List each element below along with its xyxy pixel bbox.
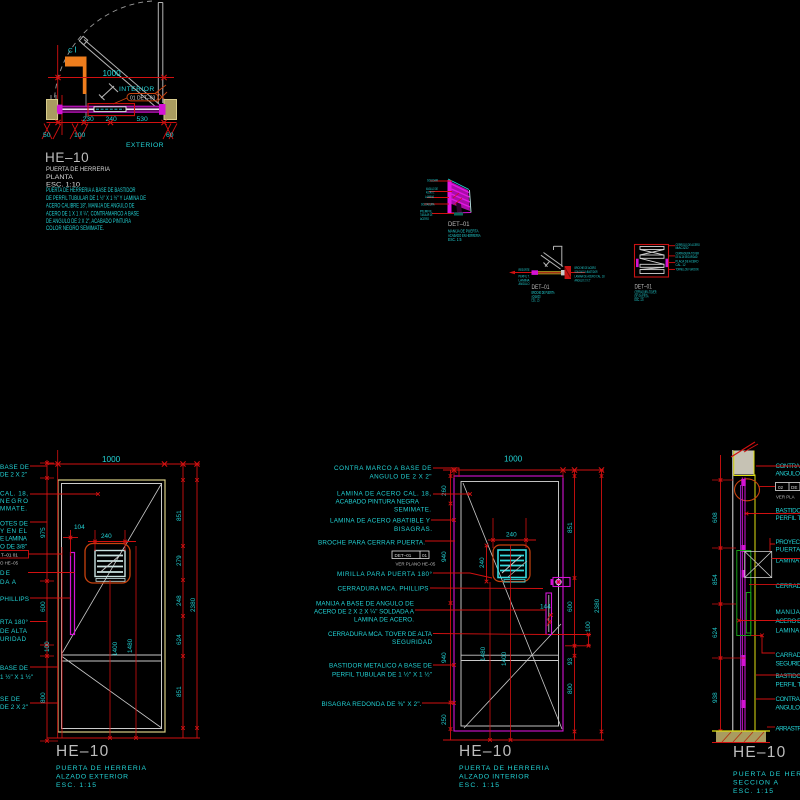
svg-text:DE 2 X 2": DE 2 X 2" [0,472,27,479]
svg-text:SEMIMATE.: SEMIMATE. [394,507,431,514]
svg-text:RESORTE: RESORTE [519,268,531,272]
svg-text:LAMINA: LAMINA [425,195,435,199]
svg-text:HE–10: HE–10 [45,150,89,165]
svg-text:1000: 1000 [504,455,523,464]
svg-text:DET–01: DET–01 [448,222,470,228]
svg-text:RTA 180°: RTA 180° [0,618,28,626]
svg-text:C: C [68,48,73,55]
svg-text:100: 100 [585,621,592,632]
svg-text:BASTIDOR: BASTIDOR [776,673,800,680]
svg-text:URIDAD: URIDAD [0,636,26,643]
svg-text:600: 600 [567,601,574,612]
svg-text:ESC. 1:5: ESC. 1:5 [448,237,462,242]
svg-text:PERFIL TUBULAR DE 1 ½" X 1 ½": PERFIL TUBULAR DE 1 ½" X 1 ½" [332,671,432,679]
svg-text:SE DE: SE DE [0,696,20,703]
svg-text:240: 240 [479,557,486,568]
svg-text:PUERTA DE HERRERIA A BASE DE B: PUERTA DE HERRERIA A BASE DE BASTIDOR [46,187,136,194]
svg-text:ESC. 1:5: ESC. 1:5 [635,297,644,302]
svg-text:800: 800 [40,692,47,703]
svg-text:PUERTA DE HERRERIA: PUERTA DE HERRERIA [46,166,111,173]
svg-text:ACERO 1": ACERO 1" [426,191,435,195]
svg-text:LAMINA DE ACERO ABATIBLE Y: LAMINA DE ACERO ABATIBLE Y [330,518,431,525]
svg-text:ESC. 1:15: ESC. 1:15 [733,788,773,795]
svg-text:DE: DE [791,485,797,490]
svg-text:PERFIL TU: PERFIL TU [776,515,800,522]
svg-text:MANIJA A BASE DE ANGULO DE: MANIJA A BASE DE ANGULO DE [316,601,414,608]
svg-text:144: 144 [540,604,551,611]
svg-text:SOLDADURA: SOLDADURA [421,202,435,206]
svg-text:VER PLANO HE–05: VER PLANO HE–05 [396,562,436,567]
svg-text:PLANTA: PLANTA [46,174,74,181]
svg-text:CAL. 18,: CAL. 18, [0,491,28,498]
svg-text:50: 50 [43,132,51,139]
svg-text:PUERTA DE HERRERIA: PUERTA DE HERRERIA [56,765,146,772]
svg-text:ACERO DE 1 X 1 X ¼", CONTRAMA: ACERO DE 1 X 1 X ¼", CONTRAMARCO A BASE [46,211,139,218]
svg-text:1400: 1400 [501,651,508,666]
svg-text:2380: 2380 [594,598,601,613]
svg-text:PUERTA DE HERRERIA: PUERTA DE HERRERIA [459,765,549,772]
svg-text:248: 248 [176,595,183,606]
svg-text:DE ANGULO DE 2 X 2", ACABADO P: DE ANGULO DE 2 X 2", ACABADO PINTURA [46,218,132,225]
svg-text:60: 60 [166,132,174,139]
svg-text:DE ALTA: DE ALTA [0,628,28,635]
svg-text:DE ALTA SEGURIDAD: DE ALTA SEGURIDAD [676,255,698,259]
svg-text:279: 279 [176,555,183,566]
svg-text:MMATE.: MMATE. [0,506,27,513]
svg-text:624: 624 [712,627,719,638]
svg-text:MANIJA A: MANIJA A [776,609,800,616]
svg-text:INTERIOR: INTERIOR [119,86,155,93]
svg-text:DE: DE [0,570,10,577]
svg-text:CONTRA M: CONTRA M [776,696,800,703]
svg-text:Y EN EL: Y EN EL [0,528,27,535]
svg-text:CERRADURA MCA. PHILLIPS: CERRADURA MCA. PHILLIPS [338,586,429,593]
svg-text:T–01 01: T–01 01 [1,553,18,558]
svg-text:BASE DE: BASE DE [0,464,29,471]
svg-text:DE 2 X 2": DE 2 X 2" [0,704,28,711]
svg-text:BROCHE DE ACERO: BROCHE DE ACERO [575,266,597,270]
svg-text:CAL. 12: CAL. 12 [676,263,686,267]
svg-text:DET–01: DET–01 [395,553,412,558]
svg-text:608: 608 [712,512,719,523]
svg-text:MACIZO: MACIZO [676,246,689,250]
svg-text:CONTRA M: CONTRA M [776,463,800,470]
svg-text:851: 851 [567,522,574,533]
svg-text:O DE 3/8": O DE 3/8" [0,544,27,551]
svg-text:854: 854 [712,574,719,585]
svg-text:240: 240 [101,533,112,540]
svg-text:PHILLIPS: PHILLIPS [0,596,29,603]
svg-text:BROCHE PARA CERRAR PUERTA.: BROCHE PARA CERRAR PUERTA. [318,540,425,547]
svg-text:2380: 2380 [190,597,197,612]
svg-text:BISAGRA REDONDA DE ⅜" X 2".: BISAGRA REDONDA DE ⅜" X 2". [322,701,422,708]
svg-text:01 DET–03: 01 DET–03 [130,95,156,101]
svg-text:600: 600 [40,601,47,612]
svg-text:624: 624 [176,634,183,645]
svg-text:MIRILLA PARA PUERTA 180°: MIRILLA PARA PUERTA 180° [337,570,432,578]
svg-text:ESC. 1:5: ESC. 1:5 [532,297,540,302]
svg-text:HE–10: HE–10 [733,744,786,761]
svg-text:EXTERIOR: EXTERIOR [126,142,164,149]
svg-text:104: 104 [74,524,85,531]
svg-text:ANGULO D: ANGULO D [776,705,800,712]
svg-text:LAMINA D: LAMINA D [776,628,800,635]
svg-text:TORNILLOS FIJACION: TORNILLOS FIJACION [676,268,699,272]
svg-text:938: 938 [712,692,719,703]
svg-text:ARRASTRE: ARRASTRE [776,726,800,733]
svg-text:VER PLA: VER PLA [776,495,795,500]
svg-text:100: 100 [74,132,86,139]
svg-text:SECCION A: SECCION A [733,780,778,787]
svg-text:ANGULO: ANGULO [519,282,530,286]
svg-text:SOLDAR: SOLDAR [427,179,438,183]
svg-text:851: 851 [176,510,183,521]
svg-text:240: 240 [506,532,517,539]
svg-text:1000: 1000 [102,455,121,464]
svg-text:940: 940 [441,551,448,562]
svg-text:BISAGRAS.: BISAGRAS. [394,526,432,533]
svg-text:OTES DE: OTES DE [0,521,28,528]
svg-text:CERRADU: CERRADU [776,583,800,590]
svg-text:DA A: DA A [0,579,17,586]
svg-text:ALZADO INTERIOR: ALZADO INTERIOR [459,774,529,781]
svg-text:LAMINA DE ACERO CAL. 18,: LAMINA DE ACERO CAL. 18, [337,491,431,498]
svg-text:ESC. 1:15: ESC. 1:15 [459,782,499,789]
svg-text:ACABADO PINTURA NEGRA: ACABADO PINTURA NEGRA [336,499,420,506]
svg-text:CONTRA MARCO A BASE DE: CONTRA MARCO A BASE DE [334,465,432,472]
svg-text:SEGURIDAD: SEGURIDAD [392,639,432,646]
svg-text:O HE–05: O HE–05 [0,561,19,566]
svg-text:250: 250 [441,714,448,725]
svg-text:975: 975 [40,527,47,538]
svg-text:ACERO DE 2 X 2 X ¼" SOLDADA A: ACERO DE 2 X 2 X ¼" SOLDADA A [314,609,415,616]
svg-text:ACERO CALIBRE 18", MANIJA DE A: ACERO CALIBRE 18", MANIJA DE ANGULO DE [46,203,135,210]
svg-text:02: 02 [778,485,784,490]
svg-text:ANGULO D: ANGULO D [776,471,800,478]
svg-text:HE–10: HE–10 [56,743,109,760]
svg-text:BASTIDOR METALICO A BASE DE: BASTIDOR METALICO A BASE DE [329,663,432,670]
svg-text:ALZADO EXTERIOR: ALZADO EXTERIOR [56,774,128,781]
svg-text:PUERTA DE HERRE: PUERTA DE HERRE [733,771,800,778]
svg-text:01: 01 [422,553,428,558]
svg-text:1000: 1000 [103,69,122,78]
svg-text:1480: 1480 [127,638,134,653]
svg-text:BASE DE: BASE DE [0,665,28,672]
svg-text:1 ½" X 1 ½": 1 ½" X 1 ½" [0,673,33,681]
svg-text:E LAMINA: E LAMINA [0,536,28,543]
svg-text:HE–10: HE–10 [459,743,512,760]
svg-text:CERRADURA MCA. TOVER DE ALTA: CERRADURA MCA. TOVER DE ALTA [328,631,433,638]
svg-text:PUERTA A: PUERTA A [776,547,800,554]
svg-text:93: 93 [567,657,574,665]
svg-text:ACERO: ACERO [420,217,429,221]
svg-text:PERFIL TU: PERFIL TU [776,682,800,689]
svg-text:CARRADU: CARRADU [776,652,800,659]
svg-text:851: 851 [176,686,183,697]
svg-text:NEGRO: NEGRO [0,498,28,505]
svg-text:100: 100 [44,641,51,652]
svg-text:1400: 1400 [112,641,119,656]
svg-text:ESC. 1:15: ESC. 1:15 [56,782,96,789]
svg-text:ANGULO 2 X 2": ANGULO 2 X 2" [575,279,592,283]
svg-text:PROYECCI: PROYECCI [776,539,800,546]
svg-text:ANGULO DE 2 X 2": ANGULO DE 2 X 2" [370,474,432,481]
svg-text:ACERO DE: ACERO DE [776,618,800,625]
svg-text:LAMINA DE ACERO.: LAMINA DE ACERO. [354,617,414,624]
svg-text:800: 800 [567,683,574,694]
svg-text:1480: 1480 [480,646,487,661]
svg-text:940: 940 [441,652,448,663]
svg-text:DE PERFIL TUBULAR DE 1 ½" X 1: DE PERFIL TUBULAR DE 1 ½" X 1 ½" Y LAMIN… [46,195,146,202]
svg-text:COLOR NEGRO SEMIMATE.: COLOR NEGRO SEMIMATE. [46,225,104,232]
svg-text:SEGURIDA: SEGURIDA [776,661,800,668]
svg-text:530: 530 [137,116,149,123]
